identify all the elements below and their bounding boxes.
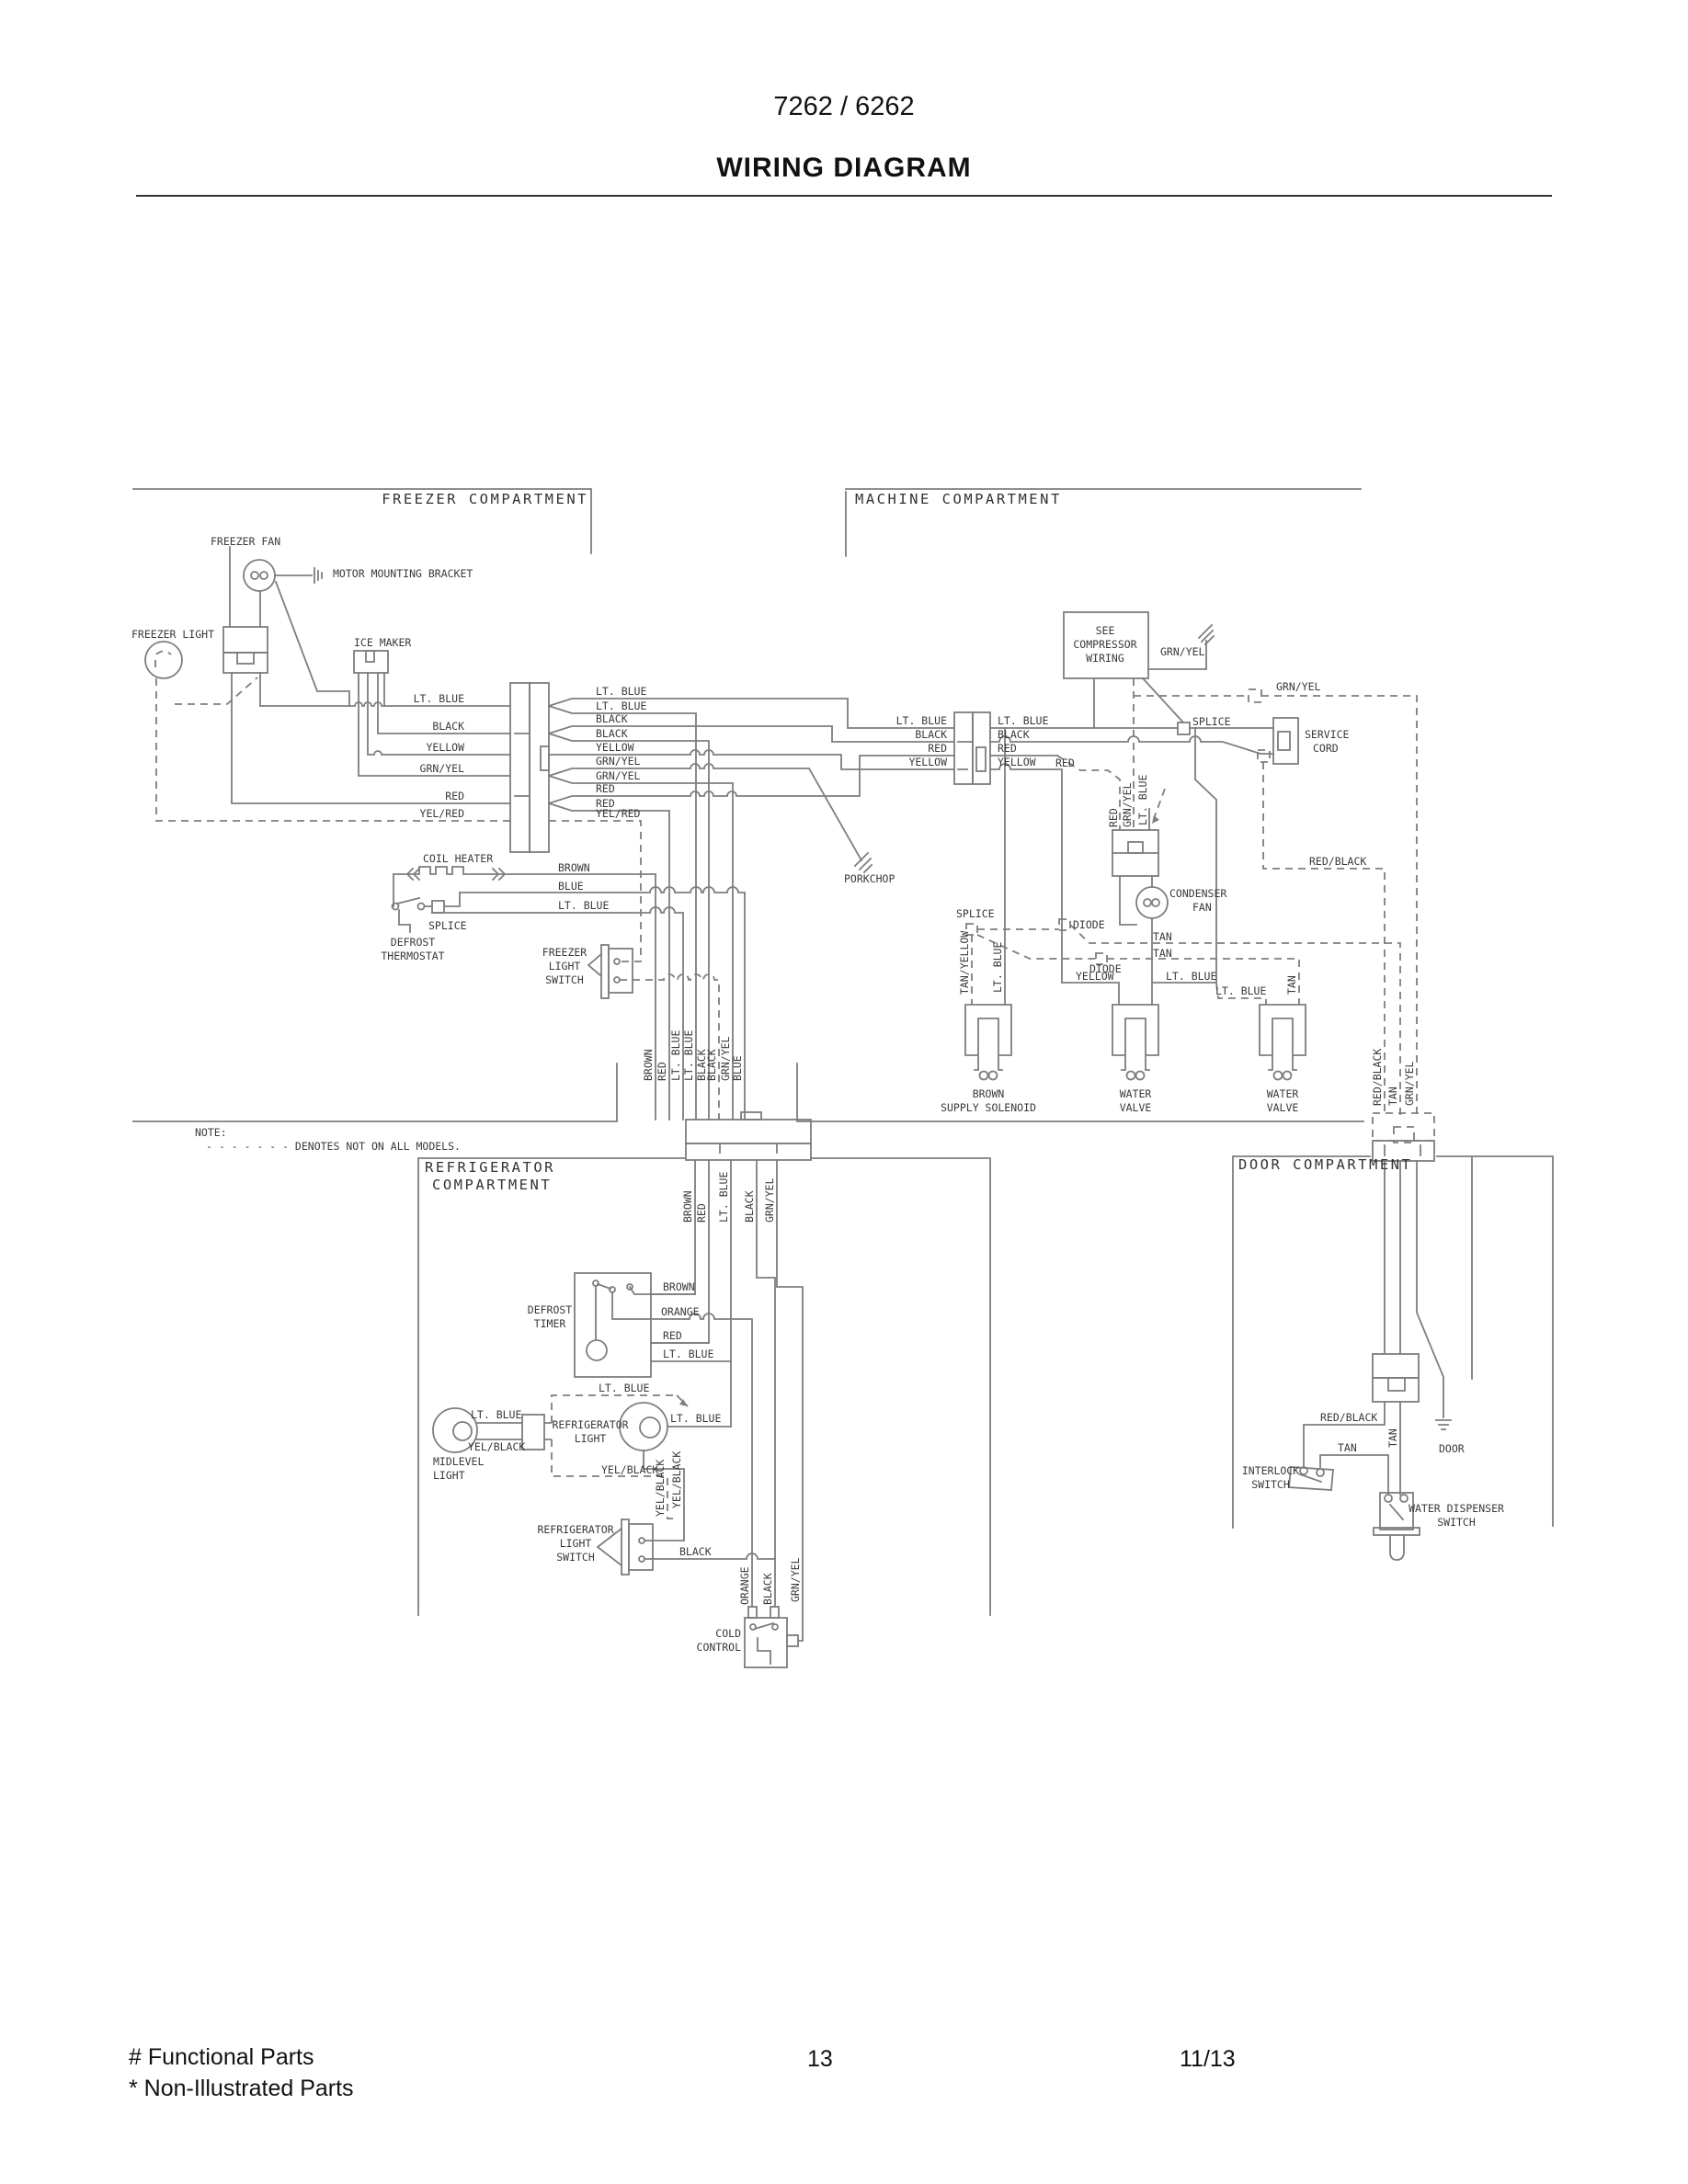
wire-label: GRN/YEL <box>764 1178 776 1223</box>
brown-supply-solenoid-label: BROWN <box>973 1088 1005 1100</box>
footer-page-number: 13 <box>807 2046 833 2073</box>
refrigerator-compartment-title2: COMPARTMENT <box>432 1179 552 1191</box>
wire-label: BROWN <box>643 1049 655 1081</box>
motor-mounting-bracket-label: MOTOR MOUNTING BRACKET <box>333 568 473 580</box>
footer-functional-parts: # Functional Parts <box>129 2044 314 2071</box>
wire-label: BLUE <box>558 881 584 893</box>
wire-label: BLACK <box>744 1190 756 1223</box>
wire-label: BLACK <box>915 729 947 741</box>
wire-label: BLACK <box>596 713 628 725</box>
wire-label: LT. BLUE <box>683 1030 695 1081</box>
wire-label: BLACK <box>432 721 464 733</box>
wire-label: RED <box>656 1062 668 1081</box>
compressor-note2: COMPRESSOR <box>1073 639 1136 651</box>
refrigerator-light-switch-label: REFRIGERATOR <box>537 1524 613 1536</box>
note-text: - - - - - - - DENOTES NOT ON ALL MODELS. <box>206 1141 461 1153</box>
wire-label: BLACK <box>998 729 1030 741</box>
wire-label: YEL/BLACK <box>671 1451 683 1508</box>
wire-label: ORANGE <box>661 1306 700 1318</box>
wire-label: YEL/RED <box>420 808 464 820</box>
wire-label: LT. BLUE <box>992 942 1004 993</box>
wire-label: LT. BLUE <box>998 715 1048 727</box>
wire-label: YELLOW <box>1076 971 1114 983</box>
service-cord-label: SERVICE <box>1305 729 1349 741</box>
wire-label: ORANGE <box>739 1566 751 1605</box>
defrost-thermostat-label2: THERMOSTAT <box>381 950 444 962</box>
splice-label-2: SPLICE <box>956 908 995 920</box>
wire-label: LT. BLUE <box>596 700 646 712</box>
splice-label-3: SPLICE <box>428 920 467 932</box>
wire-label: BROWN <box>558 862 590 874</box>
refrigerator-light-switch-label2: LIGHT <box>560 1538 592 1550</box>
wire-label: RED/BLACK <box>1309 856 1366 868</box>
refrigerator-compartment-title: REFRIGERATOR <box>425 1162 555 1174</box>
service-cord-label2: CORD <box>1313 743 1339 755</box>
wire-label: TAN/YELLOW <box>959 931 971 995</box>
wire-label: YELLOW <box>998 756 1036 768</box>
wire-label: GRN/YEL <box>596 756 640 768</box>
wire-label: BLACK <box>762 1573 774 1605</box>
machine-compartment-title: MACHINE COMPARTMENT <box>855 494 1062 506</box>
cold-control-label2: CONTROL <box>697 1642 741 1654</box>
wire-label: GRN/YEL <box>1276 681 1320 693</box>
wire-label: GRN/YEL <box>596 770 640 782</box>
interlock-switch-label2: SWITCH <box>1251 1479 1290 1491</box>
wire-label: TAN <box>1286 975 1298 995</box>
wire-label: LT. BLUE <box>670 1413 721 1425</box>
wire-label: LT. BLUE <box>670 1030 682 1081</box>
wire-label: RED <box>596 783 615 795</box>
defrost-timer-label2: TIMER <box>534 1318 566 1330</box>
wire-label: GRN/YEL <box>420 763 464 775</box>
wire-label: GRN/YEL <box>1122 783 1134 827</box>
compressor-note: SEE <box>1096 625 1115 637</box>
wire-label: RED <box>445 791 464 802</box>
wire-label: YELLOW <box>426 742 464 754</box>
wire-label: RED <box>696 1203 708 1223</box>
diode-label: DIODE <box>1073 919 1105 931</box>
wire-label: YEL/BLACK <box>468 1441 525 1453</box>
water-dispenser-switch-label: WATER DISPENSER <box>1409 1503 1504 1515</box>
wire-label: TAN <box>1153 931 1172 943</box>
footer-non-illustrated-parts: * Non-Illustrated Parts <box>129 2076 354 2102</box>
wire-label: RED <box>663 1330 682 1342</box>
refrigerator-light-label: REFRIGERATOR <box>552 1419 628 1431</box>
door-compartment-title: DOOR COMPARTMENT <box>1238 1159 1412 1171</box>
wire-label: RED <box>1108 808 1120 827</box>
defrost-thermostat-label: DEFROST <box>391 937 435 949</box>
wiring-diagram-art <box>0 0 1688 2184</box>
midlevel-light-label: MIDLEVEL <box>433 1456 484 1468</box>
wire-label: RED/BLACK <box>1372 1049 1384 1106</box>
wire-label: TAN <box>1387 1428 1399 1448</box>
wire-label: GRN/YEL <box>790 1558 802 1602</box>
freezer-light-switch-label3: SWITCH <box>545 974 584 986</box>
wire-label: BLUE <box>732 1055 744 1081</box>
water-valve-2-label: WATER <box>1267 1088 1299 1100</box>
wire-label: RED <box>928 743 947 755</box>
wire-label: BLACK <box>596 728 628 740</box>
cold-control-label: COLD <box>715 1628 741 1640</box>
wire-label: TAN <box>1153 948 1172 960</box>
wire-label: YEL/RED <box>596 808 640 820</box>
wire-label: BLACK <box>706 1049 718 1081</box>
wire-label: GRN/YEL <box>1404 1062 1416 1106</box>
wire-label: YEL/BLACK <box>601 1464 658 1476</box>
ice-maker-label: ICE MAKER <box>354 637 411 649</box>
freezer-light-switch-label: FREEZER <box>542 947 587 959</box>
wire-label: LT. BLUE <box>1166 971 1216 983</box>
wire-label: YELLOW <box>908 756 947 768</box>
condenser-fan-label: CONDENSER <box>1169 888 1226 900</box>
freezer-light-switch-label2: LIGHT <box>549 961 581 973</box>
wire-label: LT. BLUE <box>1137 775 1149 825</box>
splice-label: SPLICE <box>1192 716 1231 728</box>
brown-supply-solenoid-label2: SUPPLY SOLENOID <box>941 1102 1036 1114</box>
wire-label: BROWN <box>682 1190 694 1223</box>
wire-label: LT. BLUE <box>663 1348 713 1360</box>
interlock-switch-label: INTERLOCK <box>1242 1465 1299 1477</box>
wire-label: BROWN <box>663 1281 695 1293</box>
footer-date: 11/13 <box>1180 2046 1236 2073</box>
wire-label: LT. BLUE <box>896 715 947 727</box>
wire-label: GRN/YEL <box>1160 646 1204 658</box>
wire-label: LT. BLUE <box>1215 985 1266 997</box>
wire-label: LT. BLUE <box>718 1172 730 1223</box>
door-label: DOOR <box>1439 1443 1465 1455</box>
note-label: NOTE: <box>195 1127 227 1139</box>
refrigerator-light-label2: LIGHT <box>575 1433 607 1445</box>
freezer-fan-label: FREEZER FAN <box>211 536 280 548</box>
water-valve-2-label2: VALVE <box>1267 1102 1299 1114</box>
wire-label: TAN <box>1387 1086 1399 1106</box>
compressor-note3: WIRING <box>1086 653 1124 665</box>
water-valve-label: WATER <box>1120 1088 1152 1100</box>
refrigerator-light-switch-label3: SWITCH <box>556 1552 595 1564</box>
wire-label: RED <box>1055 757 1075 769</box>
wire-label: RED/BLACK <box>1320 1412 1377 1424</box>
wire-label: RED <box>998 743 1017 755</box>
wiring-diagram-page: 7262 / 6262 WIRING DIAGRAM <box>0 0 1688 2184</box>
water-valve-label2: VALVE <box>1120 1102 1152 1114</box>
freezer-compartment-title: FREEZER COMPARTMENT <box>382 494 588 506</box>
water-dispenser-switch-label2: SWITCH <box>1437 1517 1476 1529</box>
freezer-light-label: FREEZER LIGHT <box>131 629 214 641</box>
condenser-fan-label2: FAN <box>1192 902 1212 914</box>
wire-label: LT. BLUE <box>558 900 609 912</box>
defrost-timer-label: DEFROST <box>528 1304 572 1316</box>
wire-label: LT. BLUE <box>596 686 646 698</box>
coil-heater-label: COIL HEATER <box>423 853 493 865</box>
wire-label: LT. BLUE <box>414 693 464 705</box>
wire-label: LT. BLUE <box>599 1382 649 1394</box>
wire-label: YEL/BLACK <box>655 1460 667 1517</box>
porkchop-label: PORKCHOP <box>844 873 895 885</box>
wire-label: YELLOW <box>596 742 634 754</box>
wire-label: LT. BLUE <box>471 1409 521 1421</box>
wire-label: TAN <box>1338 1442 1357 1454</box>
midlevel-light-label2: LIGHT <box>433 1470 465 1482</box>
wire-label: BLACK <box>679 1546 712 1558</box>
